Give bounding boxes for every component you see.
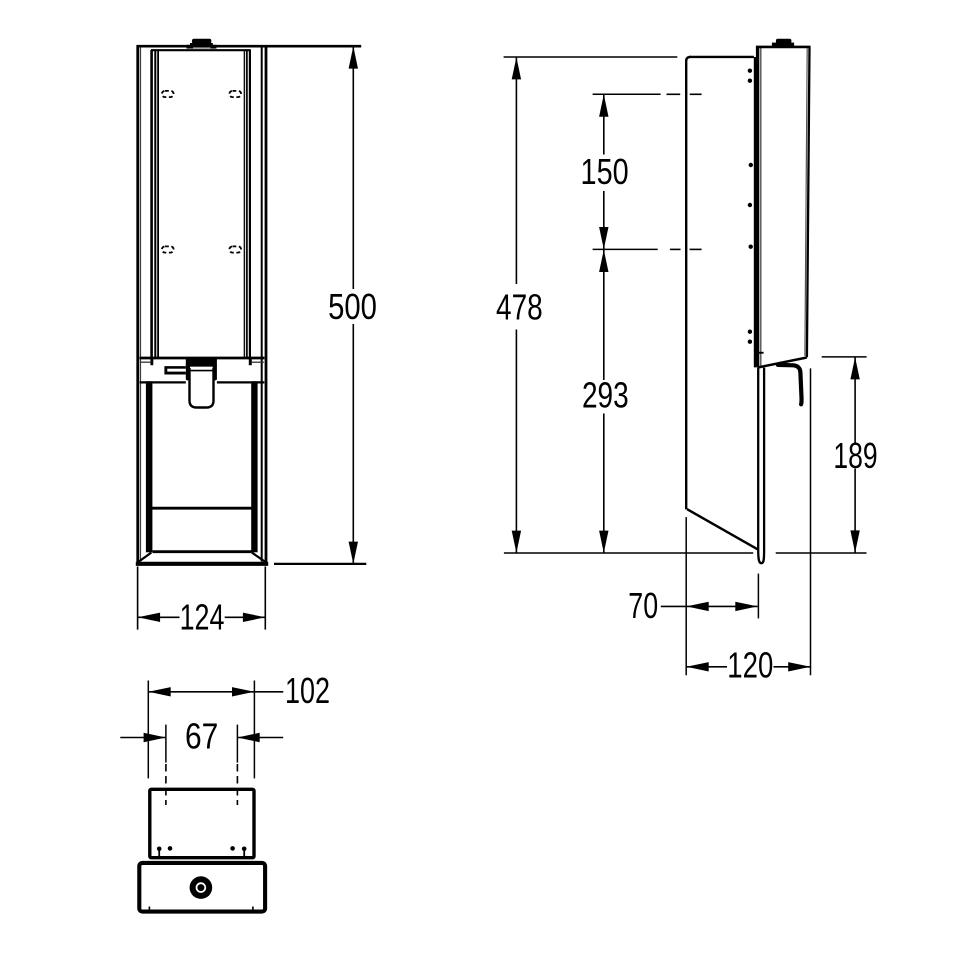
svg-text:120: 120 — [727, 645, 773, 686]
svg-text:102: 102 — [285, 670, 330, 711]
svg-text:67: 67 — [185, 715, 218, 756]
svg-text:70: 70 — [628, 585, 658, 626]
svg-text:293: 293 — [582, 375, 629, 416]
svg-text:500: 500 — [328, 286, 377, 327]
svg-text:478: 478 — [496, 286, 543, 327]
svg-text:189: 189 — [833, 435, 877, 476]
svg-text:150: 150 — [581, 151, 629, 192]
svg-text:124: 124 — [180, 596, 225, 637]
